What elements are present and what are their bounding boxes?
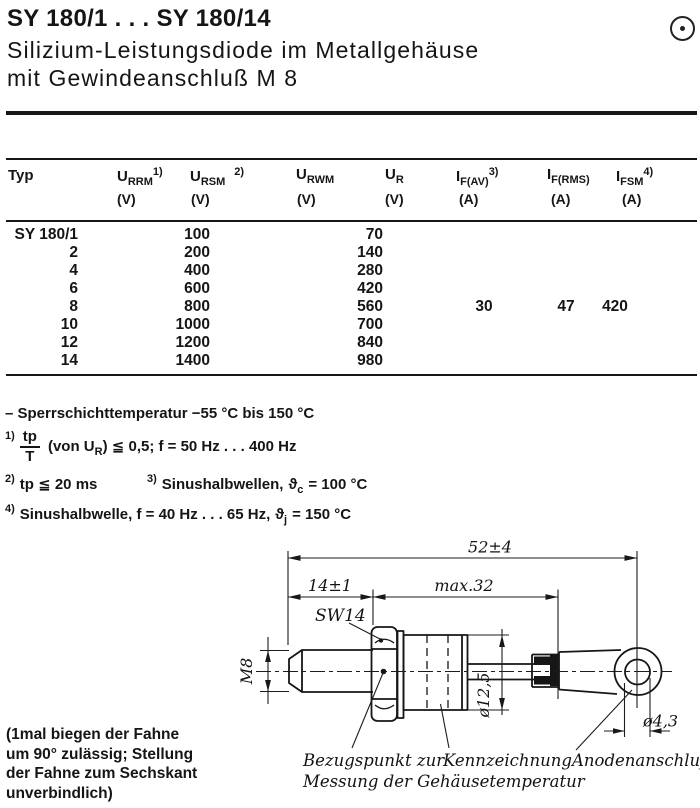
cell-urrm: 1200 bbox=[140, 334, 210, 352]
cell-typ: 8 bbox=[8, 298, 78, 316]
unit-urrm: (V) bbox=[117, 191, 136, 207]
cell-urwm: 420 bbox=[310, 280, 383, 298]
bend-remark-line2: um 90° zulässig; Stellung bbox=[6, 745, 197, 765]
cell-typ: 10 bbox=[8, 316, 78, 334]
marking-band bbox=[427, 635, 448, 710]
col-header-ifav: IF(AV)3) bbox=[456, 166, 498, 188]
unit-urwm: (V) bbox=[297, 191, 316, 207]
cell-urrm: 1400 bbox=[140, 352, 210, 370]
datasheet-page: SY 180/1 . . . SY 180/14 Silizium-Leistu… bbox=[0, 0, 700, 808]
cell-urrm: 1000 bbox=[140, 316, 210, 334]
tp-over-T-fraction: tpT bbox=[20, 429, 40, 465]
cell-urwm: 700 bbox=[310, 316, 383, 334]
table-row: 4400280 bbox=[0, 262, 700, 280]
cell-urrm: 400 bbox=[140, 262, 210, 280]
cell-typ: 14 bbox=[8, 352, 78, 370]
bend-remark-line1: (1mal biegen der Fahne bbox=[6, 725, 197, 745]
table-row: 121200840 bbox=[0, 334, 700, 352]
footnote-2: 2)tp ≦ 20 ms bbox=[5, 473, 97, 493]
table-rule-top bbox=[6, 158, 697, 160]
shared-value-ifrms: 47 bbox=[544, 298, 588, 316]
footnote-1-text: (von UR) ≦ 0,5; f = 50 Hz . . . 400 Hz bbox=[48, 437, 297, 458]
marking-label: Kennzeichnung bbox=[442, 751, 572, 770]
unit-ur: (V) bbox=[385, 191, 404, 207]
col-header-ur: UR bbox=[385, 166, 404, 186]
body-diameter-label: ø12,5 bbox=[474, 672, 493, 718]
projection-symbol-dot bbox=[680, 26, 685, 31]
unit-ursm: (V) bbox=[191, 191, 210, 207]
table-row: 141400980 bbox=[0, 352, 700, 370]
title-rule bbox=[6, 111, 697, 115]
table-row: 101000700 bbox=[0, 316, 700, 334]
thread-size-label: M8 bbox=[240, 658, 256, 686]
shared-value-ifav: 30 bbox=[462, 298, 506, 316]
cell-urwm: 840 bbox=[310, 334, 383, 352]
anode-leader bbox=[576, 690, 632, 750]
table-row: 6600420 bbox=[0, 280, 700, 298]
cell-urwm: 280 bbox=[310, 262, 383, 280]
footnote-1-marker: 1) bbox=[5, 430, 15, 442]
junction-temp-note: – Sperrschichttemperatur −55 °C bis 150 … bbox=[5, 405, 314, 422]
anode-connection-label: Anodenanschluß bbox=[570, 751, 700, 770]
cell-urrm: 200 bbox=[140, 244, 210, 262]
col-header-urrm: URRM1) bbox=[117, 166, 163, 188]
cell-typ: 2 bbox=[8, 244, 78, 262]
shared-value-ifsm: 420 bbox=[591, 298, 639, 316]
temp-reference-label-line1: Bezugspunkt zur bbox=[302, 751, 445, 770]
col-header-ursm: URSM2) bbox=[190, 166, 244, 188]
dim-thread-length: 14±1 bbox=[308, 576, 352, 595]
hole-diameter-label: ø4,3 bbox=[642, 712, 678, 731]
temp-reference-label-line2: Messung der Gehäusetemperatur bbox=[302, 772, 586, 791]
table-row: 2200140 bbox=[0, 244, 700, 262]
dim-overall-length: 52±4 bbox=[468, 538, 512, 557]
cell-urwm: 70 bbox=[310, 226, 383, 244]
col-typ-label: Typ bbox=[8, 167, 34, 184]
cell-typ: SY 180/1 bbox=[8, 226, 78, 244]
table-row: SY 180/110070 bbox=[0, 226, 700, 244]
dim-body-length: max.32 bbox=[434, 576, 493, 595]
col-header-ifsm: IFSM4) bbox=[616, 166, 653, 188]
crimp-fill-bottom bbox=[534, 676, 551, 685]
cell-urrm: 600 bbox=[140, 280, 210, 298]
bend-remark: (1mal biegen der Fahne um 90° zulässig; … bbox=[6, 725, 197, 803]
outline-drawing: 52±4 14±1 max.32 SW14 M8 ø12,5 ø4,3 Bezu… bbox=[240, 530, 700, 808]
wrench-size-label: SW14 bbox=[315, 606, 366, 626]
case-body bbox=[404, 635, 468, 710]
bend-remark-line4: unverbindlich) bbox=[6, 784, 197, 804]
cell-urwm: 980 bbox=[310, 352, 383, 370]
cell-typ: 12 bbox=[8, 334, 78, 352]
footnote-4: 4)Sinushalbwelle, f = 40 Hz . . . 65 Hz,… bbox=[5, 503, 351, 526]
table-rule-header bbox=[6, 220, 697, 222]
col-header-urwm: URWM bbox=[296, 166, 334, 186]
footnote-1: 1) tpT (von UR) ≦ 0,5; f = 50 Hz . . . 4… bbox=[5, 429, 296, 465]
col-header-ifrms: IF(RMS) bbox=[547, 166, 590, 186]
cell-typ: 6 bbox=[8, 280, 78, 298]
page-title: SY 180/1 . . . SY 180/14 bbox=[7, 5, 271, 33]
cell-urrm: 100 bbox=[140, 226, 210, 244]
cell-typ: 4 bbox=[8, 262, 78, 280]
cell-urrm: 800 bbox=[140, 298, 210, 316]
bend-remark-line3: der Fahne zum Sechskant bbox=[6, 764, 197, 784]
unit-ifsm: (A) bbox=[622, 191, 641, 207]
temp-reference-leader bbox=[352, 673, 383, 748]
unit-ifav: (A) bbox=[459, 191, 478, 207]
col-header-typ: Typ bbox=[8, 167, 34, 184]
projection-symbol-icon bbox=[670, 16, 695, 41]
crimp-fill-top bbox=[534, 657, 551, 666]
footnote-3: 3)Sinushalbwellen,ϑc= 100 °C bbox=[147, 473, 367, 496]
unit-ifrms: (A) bbox=[551, 191, 570, 207]
cell-urwm: 560 bbox=[310, 298, 383, 316]
table-rule-bottom bbox=[6, 374, 697, 376]
page-subtitle-line2: mit Gewindeanschluß M 8 bbox=[7, 65, 298, 92]
page-subtitle-line1: Silizium-Leistungsdiode im Metallgehäuse bbox=[7, 37, 479, 64]
cell-urwm: 140 bbox=[310, 244, 383, 262]
